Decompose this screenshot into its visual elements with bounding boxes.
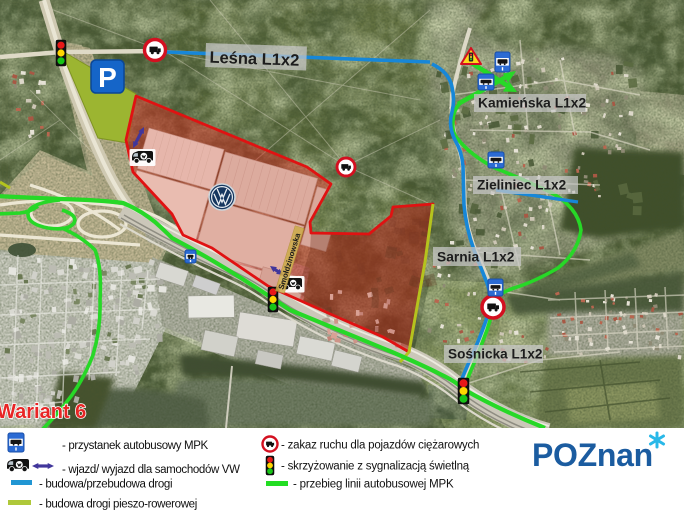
svg-text:Wariant 6: Wariant 6 [0, 401, 86, 423]
svg-text:- budowa/przebudowa drogi: - budowa/przebudowa drogi [39, 479, 172, 491]
svg-text:Kamieńska L1x2: Kamieńska L1x2 [478, 96, 586, 111]
svg-text:P: P [98, 62, 117, 93]
svg-text:- skrzyżowanie z sygnalizacją: - skrzyżowanie z sygnalizacją świetlną [281, 461, 470, 473]
svg-text:- przebieg linii autobusowej M: - przebieg linii autobusowej MPK [293, 479, 454, 491]
svg-text:Zieliniec L1x2: Zieliniec L1x2 [477, 178, 567, 193]
svg-text:- budowa drogi pieszo-rowerowe: - budowa drogi pieszo-rowerowej [39, 499, 197, 511]
svg-text:- wjazd/ wyjazd dla samochodów: - wjazd/ wyjazd dla samochodów VW [62, 464, 240, 476]
svg-text:- zakaz ruchu dla pojazdów cię: - zakaz ruchu dla pojazdów ciężarowych [281, 440, 479, 452]
svg-text:Sośnicka L1x2: Sośnicka L1x2 [448, 347, 543, 362]
svg-text:- przystanek autobusowy MPK: - przystanek autobusowy MPK [62, 440, 209, 452]
svg-text:Leśna L1x2: Leśna L1x2 [209, 49, 299, 70]
svg-text:Sarnia L1x2: Sarnia L1x2 [437, 250, 515, 265]
svg-text:POZnan: POZnan [532, 437, 653, 473]
